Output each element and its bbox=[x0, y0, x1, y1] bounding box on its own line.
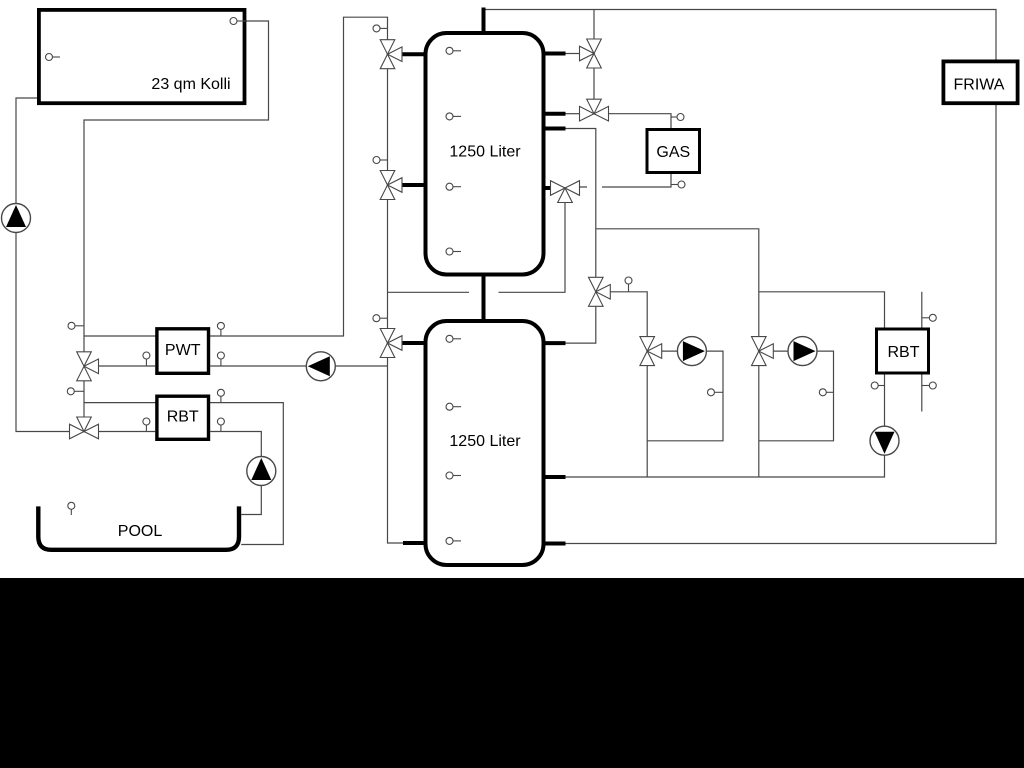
svg-text:PWT: PWT bbox=[165, 342, 201, 359]
svg-text:POOL: POOL bbox=[118, 523, 163, 540]
svg-text:RBT: RBT bbox=[888, 344, 920, 361]
svg-text:1250 Liter: 1250 Liter bbox=[449, 144, 521, 161]
svg-text:GAS: GAS bbox=[656, 144, 690, 161]
svg-text:1250 Liter: 1250 Liter bbox=[449, 433, 521, 450]
svg-text:FRIWA: FRIWA bbox=[954, 77, 1005, 94]
svg-text:RBT: RBT bbox=[167, 408, 199, 425]
svg-text:23 qm Kolli: 23 qm Kolli bbox=[151, 76, 230, 93]
